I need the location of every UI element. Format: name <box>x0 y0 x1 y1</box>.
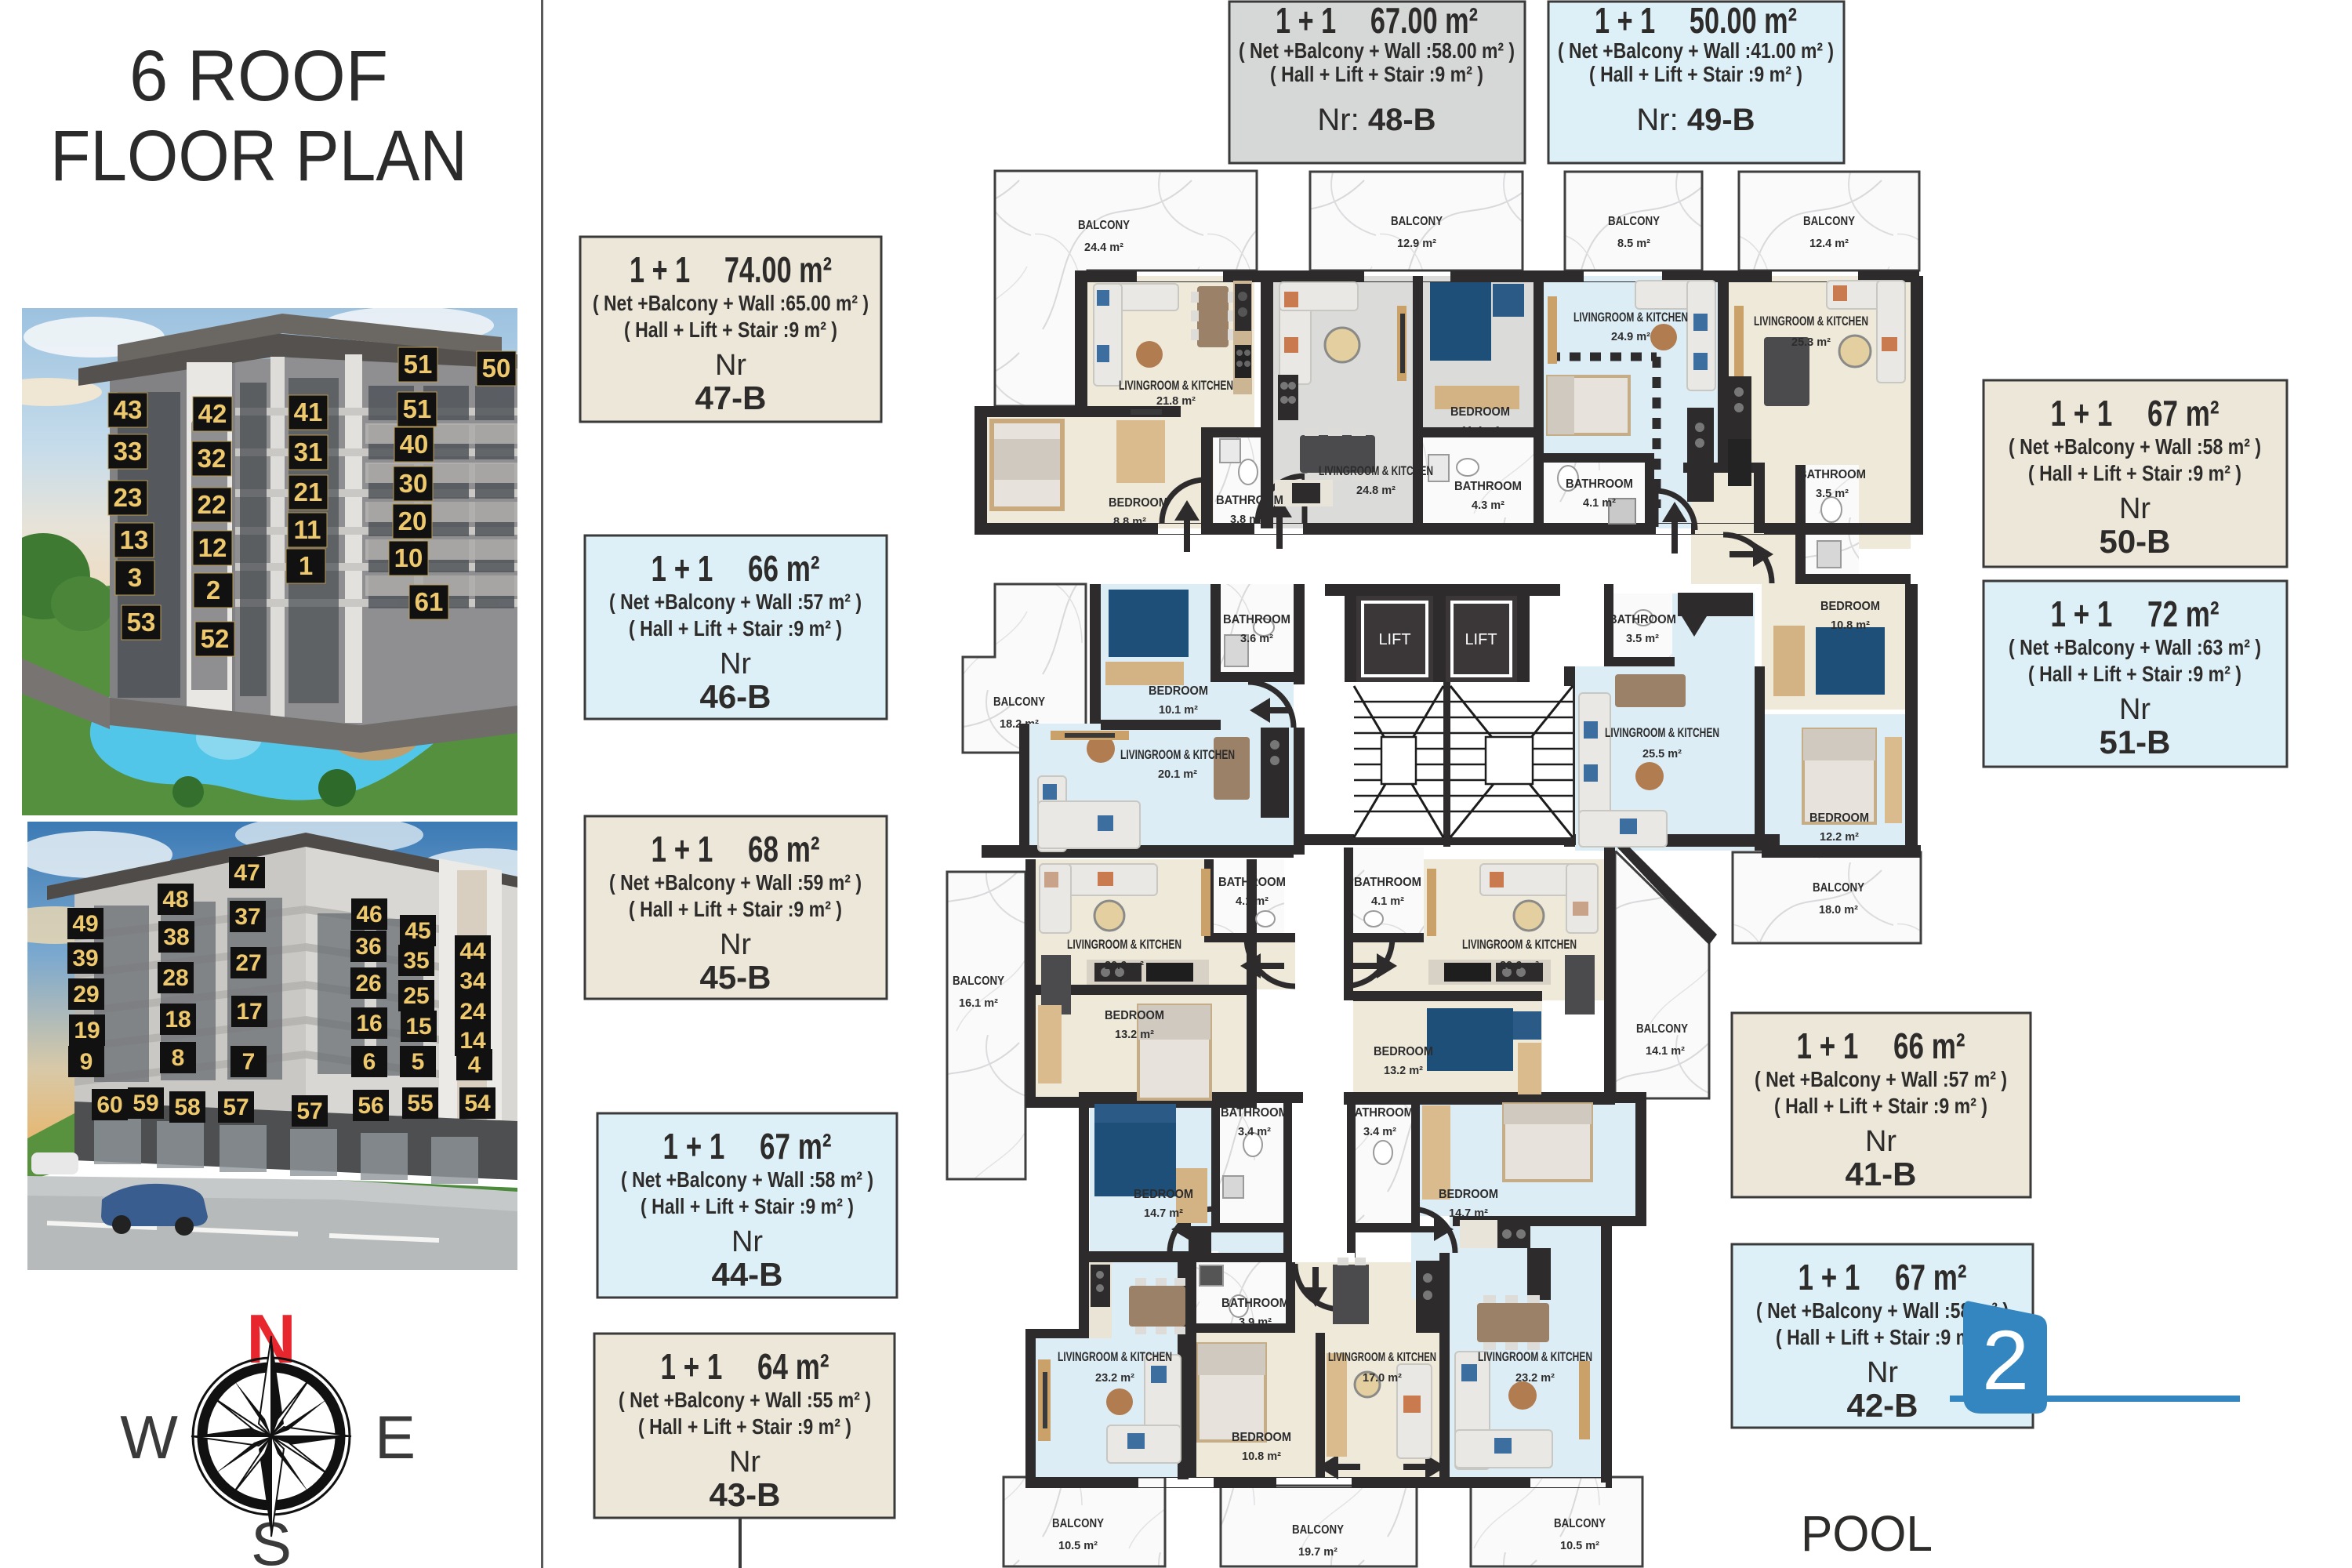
svg-text:33: 33 <box>114 437 143 466</box>
svg-text:FLOOR PLAN: FLOOR PLAN <box>50 116 467 196</box>
svg-text:10.8 m²: 10.8 m² <box>1831 619 1870 632</box>
svg-text:10.8 m²: 10.8 m² <box>1242 1450 1281 1463</box>
svg-text:50-B: 50-B <box>2099 523 2170 560</box>
svg-text:LIVINGROOM & KITCHEN: LIVINGROOM & KITCHEN <box>1067 937 1181 952</box>
svg-text:( Net +Balcony + Wall :58 m² ): ( Net +Balcony + Wall :58 m² ) <box>621 1167 873 1192</box>
svg-text:Nr: Nr <box>720 928 751 961</box>
svg-text:LIVINGROOM & KITCHEN: LIVINGROOM & KITCHEN <box>1120 747 1235 762</box>
svg-text:( Hall + Lift + Stair :9 m² ): ( Hall + Lift + Stair :9 m² ) <box>629 897 842 921</box>
svg-text:LIVINGROOM & KITCHEN: LIVINGROOM & KITCHEN <box>1605 725 1719 740</box>
svg-text:( Hall + Lift + Stair :9 m² ): ( Hall + Lift + Stair :9 m² ) <box>641 1194 854 1218</box>
svg-text:24.4 m²: 24.4 m² <box>1084 241 1123 254</box>
svg-text:23: 23 <box>114 483 143 512</box>
svg-text:58: 58 <box>174 1094 200 1120</box>
svg-text:4.1 m²: 4.1 m² <box>1583 497 1616 510</box>
svg-text:Nr: Nr <box>1865 1125 1896 1158</box>
svg-text:( Hall + Lift + Stair :9 m² ): ( Hall + Lift + Stair :9 m² ) <box>1589 62 1802 86</box>
svg-text:Nr: Nr <box>1867 1356 1898 1389</box>
svg-text:43: 43 <box>114 395 143 424</box>
svg-text:BEDROOM: BEDROOM <box>1105 1009 1164 1022</box>
svg-text:18: 18 <box>165 1007 191 1033</box>
svg-text:( Net +Balcony + Wall :41.00 m: ( Net +Balcony + Wall :41.00 m² ) <box>1558 38 1834 63</box>
svg-text:57: 57 <box>296 1098 322 1124</box>
svg-text:BATHROOM: BATHROOM <box>1221 1106 1288 1120</box>
svg-text:16.1 m²: 16.1 m² <box>959 997 998 1010</box>
svg-text:4.1 m²: 4.1 m² <box>1371 895 1404 908</box>
svg-text:10: 10 <box>394 543 423 572</box>
svg-text:BATHROOM: BATHROOM <box>1346 1106 1414 1120</box>
svg-text:14.1 m²: 14.1 m² <box>1646 1045 1685 1058</box>
svg-text:BATHROOM: BATHROOM <box>1216 494 1283 507</box>
svg-text:10.5 m²: 10.5 m² <box>1560 1540 1599 1552</box>
svg-text:20.6 m²: 20.6 m² <box>1500 960 1539 972</box>
svg-text:LIVINGROOM & KITCHEN: LIVINGROOM & KITCHEN <box>1573 310 1688 325</box>
svg-text:BEDROOM: BEDROOM <box>1374 1045 1433 1058</box>
svg-text:31: 31 <box>294 437 323 466</box>
svg-text:59: 59 <box>132 1091 158 1116</box>
svg-text:( Hall + Lift + Stair :9 m² ): ( Hall + Lift + Stair :9 m² ) <box>2028 461 2241 485</box>
svg-text:7: 7 <box>242 1049 256 1075</box>
svg-text:BALCONY: BALCONY <box>1052 1517 1104 1530</box>
svg-text:5: 5 <box>412 1049 425 1075</box>
svg-text:BATHROOM: BATHROOM <box>1221 1297 1289 1310</box>
svg-text:12: 12 <box>198 533 227 562</box>
svg-text:Nr: Nr <box>731 1225 763 1258</box>
svg-text:47-B: 47-B <box>695 379 766 416</box>
svg-text:BATHROOM: BATHROOM <box>1218 876 1286 889</box>
svg-text:26: 26 <box>355 971 381 996</box>
svg-text:6 ROOF: 6 ROOF <box>129 36 388 116</box>
svg-text:( Net +Balcony + Wall :63 m² ): ( Net +Balcony + Wall :63 m² ) <box>2009 635 2261 659</box>
svg-text:3.8 m²: 3.8 m² <box>1230 514 1263 526</box>
svg-text:13: 13 <box>120 525 149 554</box>
svg-text:( Hall + Lift + Stair :9 m² ): ( Hall + Lift + Stair :9 m² ) <box>629 616 842 641</box>
svg-text:15: 15 <box>405 1014 431 1040</box>
svg-text:BEDROOM: BEDROOM <box>1134 1188 1193 1201</box>
svg-text:Nr: 49-B: Nr: 49-B <box>1636 103 1755 137</box>
svg-text:3.5 m²: 3.5 m² <box>1816 488 1849 500</box>
svg-text:21: 21 <box>294 477 323 506</box>
svg-text:20.1 m²: 20.1 m² <box>1158 768 1197 781</box>
svg-text:21.8 m²: 21.8 m² <box>1156 395 1196 408</box>
svg-text:35: 35 <box>403 948 429 974</box>
svg-text:BALCONY: BALCONY <box>1813 881 1864 895</box>
svg-text:POOL: POOL <box>1801 1505 1933 1562</box>
svg-text:42: 42 <box>198 399 227 428</box>
svg-text:1 + 1 64 m²: 1 + 1 64 m² <box>661 1346 829 1387</box>
svg-text:12.2 m²: 12.2 m² <box>1820 831 1859 844</box>
svg-text:Nr: Nr <box>720 648 751 681</box>
svg-text:8.5 m²: 8.5 m² <box>1617 238 1650 250</box>
svg-text:46-B: 46-B <box>699 678 771 715</box>
svg-text:BEDROOM: BEDROOM <box>1809 811 1869 825</box>
svg-text:E: E <box>375 1403 416 1472</box>
svg-text:( Hall + Lift + Stair :9 m² ): ( Hall + Lift + Stair :9 m² ) <box>1270 62 1483 86</box>
svg-text:1 + 1 67 m²: 1 + 1 67 m² <box>2051 393 2220 434</box>
svg-text:LIVINGROOM & KITCHEN: LIVINGROOM & KITCHEN <box>1319 463 1433 478</box>
svg-text:LIVINGROOM & KITCHEN: LIVINGROOM & KITCHEN <box>1058 1349 1172 1364</box>
svg-text:17: 17 <box>236 999 262 1025</box>
svg-text:13.2 m²: 13.2 m² <box>1384 1065 1423 1077</box>
svg-text:1 + 1 74.00 m²: 1 + 1 74.00 m² <box>630 249 832 290</box>
svg-text:25.5 m²: 25.5 m² <box>1642 748 1682 760</box>
svg-text:1 + 1 66 m²: 1 + 1 66 m² <box>1797 1025 1965 1066</box>
svg-text:42-B: 42-B <box>1846 1387 1918 1424</box>
svg-text:8: 8 <box>172 1045 185 1071</box>
svg-text:( Net +Balcony + Wall :59 m² ): ( Net +Balcony + Wall :59 m² ) <box>609 870 862 895</box>
svg-text:23.2 m²: 23.2 m² <box>1095 1372 1134 1385</box>
svg-text:39: 39 <box>72 946 98 971</box>
svg-text:BALCONY: BALCONY <box>1078 219 1130 232</box>
svg-text:11: 11 <box>294 515 321 544</box>
svg-text:10.1 m²: 10.1 m² <box>1159 704 1198 717</box>
svg-text:BEDROOM: BEDROOM <box>1450 405 1510 419</box>
svg-text:51: 51 <box>403 394 432 423</box>
svg-text:44: 44 <box>459 938 486 964</box>
svg-text:BALCONY: BALCONY <box>1636 1022 1688 1036</box>
svg-text:1 + 1 67.00 m²: 1 + 1 67.00 m² <box>1276 0 1478 41</box>
svg-text:LIFT: LIFT <box>1465 631 1497 648</box>
svg-text:16: 16 <box>356 1011 382 1036</box>
svg-text:12.9 m²: 12.9 m² <box>1397 238 1436 250</box>
svg-text:( Net +Balcony + Wall :58 m² ): ( Net +Balcony + Wall :58 m² ) <box>2009 434 2261 459</box>
svg-text:( Net +Balcony + Wall :57 m² ): ( Net +Balcony + Wall :57 m² ) <box>609 590 862 614</box>
svg-text:24.8 m²: 24.8 m² <box>1356 485 1396 497</box>
svg-text:1 + 1 67 m²: 1 + 1 67 m² <box>663 1126 832 1167</box>
svg-text:18.0 m²: 18.0 m² <box>1819 904 1858 916</box>
svg-text:23.2 m²: 23.2 m² <box>1515 1372 1555 1385</box>
svg-text:1 + 1 72 m²: 1 + 1 72 m² <box>2051 593 2220 634</box>
svg-text:29: 29 <box>73 982 99 1007</box>
svg-text:( Hall + Lift + Stair :9 m² ): ( Hall + Lift + Stair :9 m² ) <box>1774 1094 1987 1118</box>
svg-text:24.9 m²: 24.9 m² <box>1611 331 1650 343</box>
svg-text:22: 22 <box>198 490 227 519</box>
svg-text:3: 3 <box>128 563 142 592</box>
svg-text:1 + 1 50.00 m²: 1 + 1 50.00 m² <box>1595 0 1797 41</box>
svg-text:20: 20 <box>398 506 427 535</box>
svg-text:38: 38 <box>163 924 189 950</box>
svg-text:45: 45 <box>405 918 430 944</box>
svg-text:32: 32 <box>198 444 227 473</box>
svg-text:46: 46 <box>356 902 382 927</box>
svg-text:BATHROOM: BATHROOM <box>1609 613 1676 626</box>
svg-text:BATHROOM: BATHROOM <box>1354 876 1421 889</box>
svg-text:BALCONY: BALCONY <box>993 695 1045 709</box>
svg-text:BALCONY: BALCONY <box>1391 215 1443 228</box>
svg-text:61: 61 <box>415 587 444 616</box>
svg-text:( Net +Balcony + Wall :65.00 m: ( Net +Balcony + Wall :65.00 m² ) <box>593 291 869 315</box>
svg-text:3.5 m²: 3.5 m² <box>1626 633 1659 645</box>
svg-text:14.7 m²: 14.7 m² <box>1144 1207 1183 1220</box>
svg-text:49: 49 <box>72 911 98 937</box>
svg-text:60: 60 <box>96 1092 122 1118</box>
svg-text:40: 40 <box>400 430 429 459</box>
svg-text:W: W <box>120 1403 178 1472</box>
svg-text:37: 37 <box>234 904 260 930</box>
svg-text:25: 25 <box>403 983 429 1009</box>
svg-text:41: 41 <box>294 397 323 426</box>
svg-text:53: 53 <box>127 608 156 637</box>
svg-text:2: 2 <box>206 575 220 604</box>
svg-text:12.4 m²: 12.4 m² <box>1809 238 1849 250</box>
svg-text:3.9 m²: 3.9 m² <box>1239 1316 1272 1329</box>
svg-text:LIVINGROOM & KITCHEN: LIVINGROOM & KITCHEN <box>1119 378 1233 393</box>
svg-text:1 + 1 68 m²: 1 + 1 68 m² <box>652 829 820 869</box>
svg-text:Nr: Nr <box>2119 492 2151 525</box>
svg-text:45-B: 45-B <box>699 959 771 996</box>
svg-text:19.7 m²: 19.7 m² <box>1298 1546 1338 1559</box>
svg-text:24: 24 <box>459 999 486 1025</box>
svg-text:51: 51 <box>404 350 433 379</box>
svg-text:55: 55 <box>407 1091 433 1116</box>
svg-text:LIVINGROOM & KITCHEN: LIVINGROOM & KITCHEN <box>1462 937 1577 952</box>
svg-text:( Hall + Lift + Stair :9 m² ): ( Hall + Lift + Stair :9 m² ) <box>1776 1325 1989 1349</box>
svg-text:47: 47 <box>234 860 260 886</box>
svg-text:BATHROOM: BATHROOM <box>1454 480 1522 493</box>
svg-text:1 + 1 67 m²: 1 + 1 67 m² <box>1798 1257 1967 1298</box>
svg-text:10.5 m²: 10.5 m² <box>1058 1540 1098 1552</box>
svg-text:Nr: Nr <box>729 1446 760 1479</box>
svg-text:LIVINGROOM & KITCHEN: LIVINGROOM & KITCHEN <box>1328 1351 1436 1364</box>
svg-text:BALCONY: BALCONY <box>1554 1517 1606 1530</box>
svg-text:1 + 1 66 m²: 1 + 1 66 m² <box>652 548 820 589</box>
svg-text:( Net +Balcony + Wall :58.00 m: ( Net +Balcony + Wall :58.00 m² ) <box>1239 38 1515 63</box>
svg-text:25.3 m²: 25.3 m² <box>1791 336 1831 349</box>
svg-text:51-B: 51-B <box>2099 724 2170 760</box>
svg-text:27: 27 <box>235 950 261 976</box>
svg-text:20.6 m²: 20.6 m² <box>1105 960 1144 972</box>
svg-text:43-B: 43-B <box>709 1476 780 1513</box>
svg-text:Nr: Nr <box>715 349 746 382</box>
svg-text:LIVINGROOM & KITCHEN: LIVINGROOM & KITCHEN <box>1478 1349 1592 1364</box>
svg-text:1: 1 <box>299 551 313 580</box>
svg-text:41-B: 41-B <box>1845 1156 1916 1192</box>
svg-text:11.4 m²: 11.4 m² <box>1461 425 1499 437</box>
svg-text:LIVINGROOM & KITCHEN: LIVINGROOM & KITCHEN <box>1754 314 1868 328</box>
svg-text:44-B: 44-B <box>711 1256 782 1293</box>
svg-text:BEDROOM: BEDROOM <box>1109 496 1168 510</box>
svg-text:6: 6 <box>363 1049 376 1075</box>
svg-text:BATHROOM: BATHROOM <box>1798 468 1866 481</box>
svg-text:4: 4 <box>468 1052 481 1078</box>
svg-text:3.4 m²: 3.4 m² <box>1363 1126 1396 1138</box>
svg-text:28: 28 <box>162 965 188 991</box>
svg-text:( Net +Balcony + Wall :57 m² ): ( Net +Balcony + Wall :57 m² ) <box>1755 1067 2007 1091</box>
svg-text:8.8 m²: 8.8 m² <box>1113 516 1146 528</box>
svg-text:BEDROOM: BEDROOM <box>1439 1188 1498 1201</box>
svg-text:34: 34 <box>459 968 486 994</box>
svg-text:56: 56 <box>358 1093 383 1119</box>
svg-text:BALCONY: BALCONY <box>1803 215 1855 228</box>
svg-text:( Net +Balcony + Wall :55 m² ): ( Net +Balcony + Wall :55 m² ) <box>619 1388 871 1412</box>
svg-text:BATHROOM: BATHROOM <box>1223 613 1290 626</box>
svg-text:Nr: Nr <box>2119 693 2151 726</box>
svg-text:54: 54 <box>464 1091 491 1116</box>
svg-text:52: 52 <box>201 624 230 653</box>
svg-text:30: 30 <box>399 469 428 498</box>
svg-text:BEDROOM: BEDROOM <box>1232 1431 1291 1444</box>
svg-text:2: 2 <box>1982 1312 2029 1407</box>
svg-text:( Hall + Lift + Stair :9 m² ): ( Hall + Lift + Stair :9 m² ) <box>2028 662 2241 686</box>
svg-text:14.7 m²: 14.7 m² <box>1449 1207 1488 1220</box>
svg-text:4.3 m²: 4.3 m² <box>1472 499 1504 512</box>
svg-text:13.2 m²: 13.2 m² <box>1115 1029 1154 1041</box>
svg-text:BEDROOM: BEDROOM <box>1149 684 1208 698</box>
svg-text:57: 57 <box>223 1094 249 1120</box>
svg-text:36: 36 <box>355 934 381 960</box>
svg-text:( Hall + Lift + Stair :9 m² ): ( Hall + Lift + Stair :9 m² ) <box>624 318 837 342</box>
svg-text:3.4 m²: 3.4 m² <box>1238 1126 1271 1138</box>
svg-text:BALCONY: BALCONY <box>1608 215 1660 228</box>
svg-text:LIFT: LIFT <box>1378 631 1410 648</box>
svg-text:19: 19 <box>74 1018 100 1044</box>
svg-text:50: 50 <box>482 354 511 383</box>
svg-text:4.1 m²: 4.1 m² <box>1236 895 1269 908</box>
svg-text:BEDROOM: BEDROOM <box>1820 600 1880 613</box>
svg-text:BATHROOM: BATHROOM <box>1566 477 1633 491</box>
svg-text:BALCONY: BALCONY <box>953 975 1004 988</box>
svg-text:( Hall + Lift + Stair :9 m² ): ( Hall + Lift + Stair :9 m² ) <box>638 1414 851 1439</box>
svg-text:48: 48 <box>162 887 188 913</box>
svg-text:3.6 m²: 3.6 m² <box>1240 633 1273 645</box>
svg-text:9: 9 <box>80 1049 93 1075</box>
svg-text:Nr: 48-B: Nr: 48-B <box>1317 103 1436 137</box>
svg-text:BALCONY: BALCONY <box>1292 1523 1344 1537</box>
svg-text:17.0 m²: 17.0 m² <box>1363 1372 1402 1385</box>
